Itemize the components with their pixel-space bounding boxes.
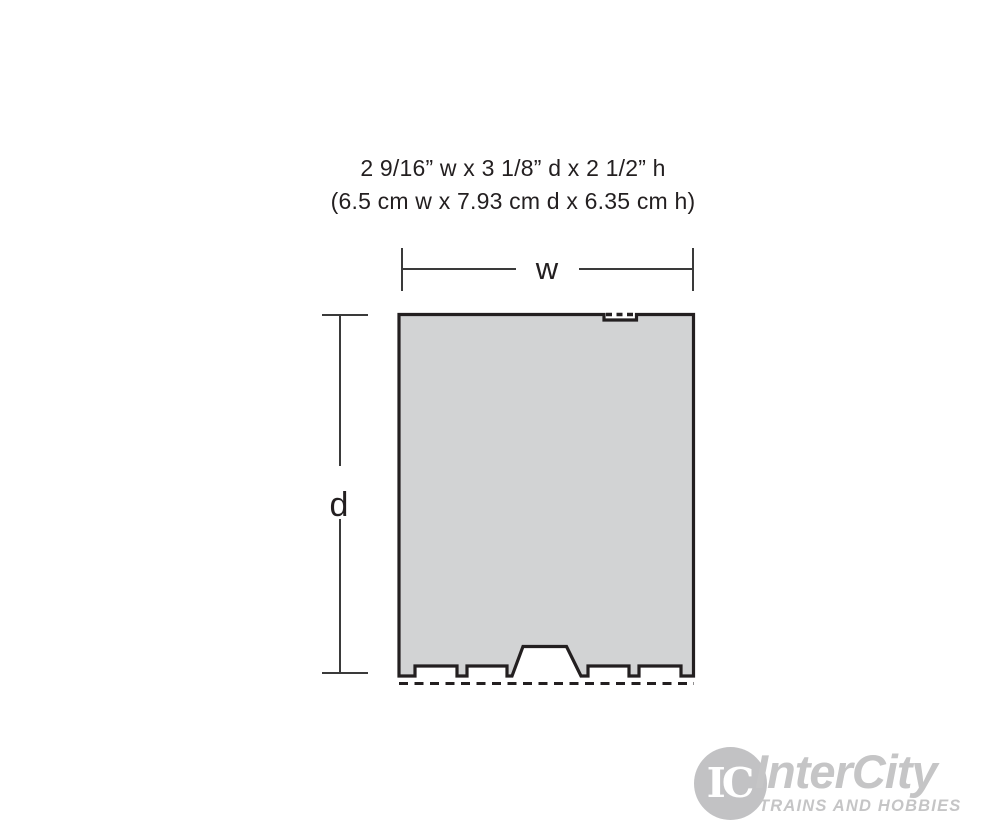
intercity-name: InterCity [755,748,962,795]
depth-label: d [330,486,349,524]
width-label: w [535,251,559,286]
footprint-diagram: w d [0,0,1000,833]
intercity-logo-text: InterCity TRAINS AND HOBBIES [755,747,962,816]
product-dimension-image: 2 9/16” w x 3 1/8” d x 2 1/2” h (6.5 cm … [0,0,1000,833]
intercity-logo: IC InterCity TRAINS AND HOBBIES [694,747,962,820]
intercity-tagline: TRAINS AND HOBBIES [759,797,962,816]
footprint-shape [399,315,694,677]
intercity-monogram: IC [707,763,755,804]
